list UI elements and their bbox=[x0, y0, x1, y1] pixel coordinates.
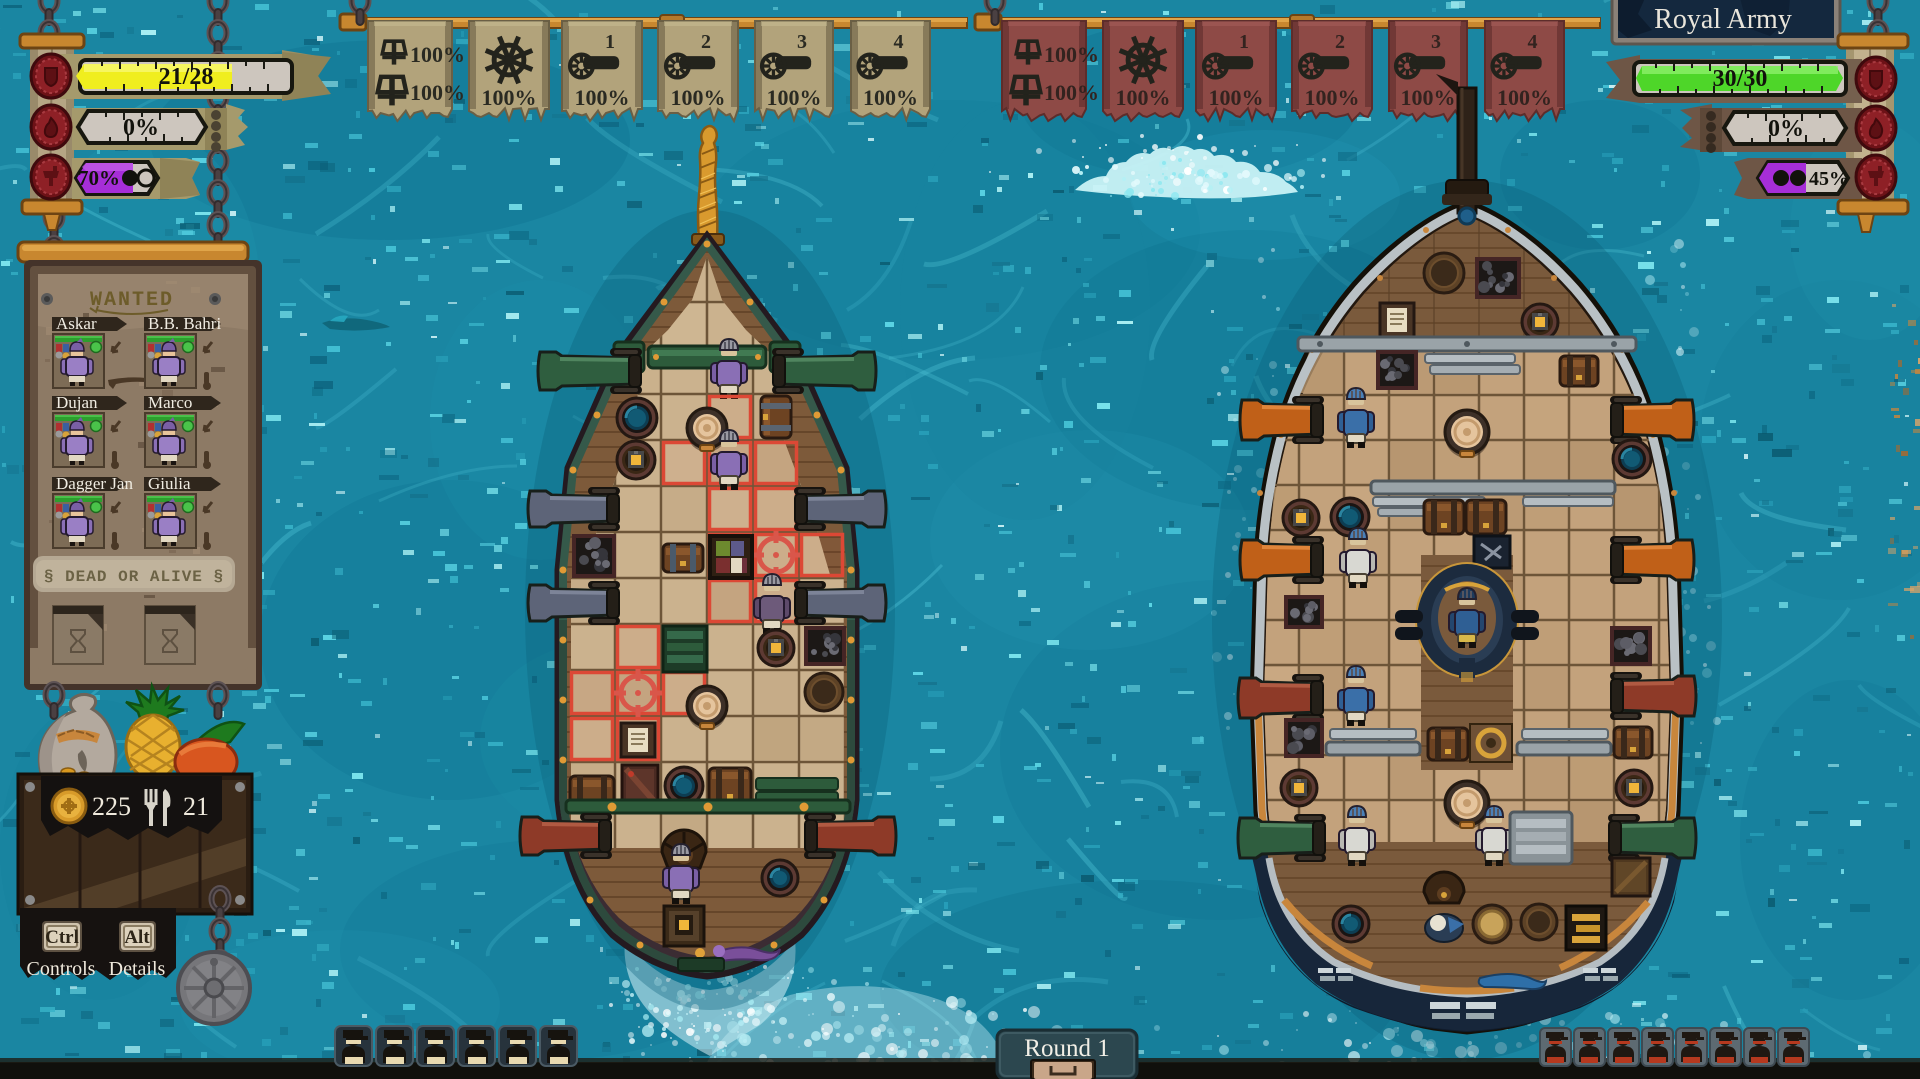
svg-text:21/28: 21/28 bbox=[159, 64, 214, 90]
svg-text:100%: 100% bbox=[410, 80, 465, 105]
svg-text:Giulia: Giulia bbox=[148, 474, 191, 493]
svg-text:45%: 45% bbox=[1809, 168, 1849, 190]
svg-text:100%: 100% bbox=[767, 85, 822, 110]
svg-text:100%: 100% bbox=[863, 85, 918, 110]
svg-text:Controls: Controls bbox=[27, 958, 96, 980]
svg-text:0%: 0% bbox=[123, 115, 159, 141]
svg-text:3: 3 bbox=[1431, 31, 1441, 53]
svg-text:1: 1 bbox=[605, 31, 615, 53]
svg-text:1: 1 bbox=[1239, 31, 1249, 53]
svg-text:3: 3 bbox=[797, 31, 807, 53]
svg-text:100%: 100% bbox=[1044, 80, 1099, 105]
svg-text:Details: Details bbox=[109, 958, 166, 980]
svg-text:100%: 100% bbox=[1305, 85, 1360, 110]
svg-text:2: 2 bbox=[1335, 31, 1345, 53]
svg-text:Dagger Jan: Dagger Jan bbox=[56, 474, 133, 493]
svg-text:Marco: Marco bbox=[148, 393, 192, 412]
svg-text:4: 4 bbox=[1528, 31, 1538, 53]
svg-text:100%: 100% bbox=[1497, 85, 1552, 110]
svg-text:Ctrl: Ctrl bbox=[45, 927, 79, 948]
svg-text:2: 2 bbox=[701, 31, 711, 53]
svg-text:100%: 100% bbox=[1209, 85, 1264, 110]
svg-text:21: 21 bbox=[183, 792, 209, 821]
svg-text:100%: 100% bbox=[482, 85, 537, 110]
svg-text:4: 4 bbox=[894, 31, 904, 53]
svg-text:100%: 100% bbox=[671, 85, 726, 110]
svg-text:0%: 0% bbox=[1768, 116, 1804, 142]
svg-text:100%: 100% bbox=[410, 42, 465, 67]
svg-text:Royal Army: Royal Army bbox=[1654, 4, 1792, 35]
svg-text:Alt: Alt bbox=[124, 927, 150, 948]
svg-text:100%: 100% bbox=[1401, 85, 1456, 110]
svg-text:Dujan: Dujan bbox=[56, 393, 98, 412]
svg-text:30/30: 30/30 bbox=[1713, 66, 1768, 92]
svg-text:Askar: Askar bbox=[56, 314, 97, 333]
svg-text:100%: 100% bbox=[1044, 42, 1099, 67]
svg-text:100%: 100% bbox=[1116, 85, 1171, 110]
svg-text:B.B. Bahri: B.B. Bahri bbox=[148, 314, 221, 333]
svg-text:WANTED: WANTED bbox=[90, 289, 174, 312]
svg-text:§ DEAD OR ALIVE §: § DEAD OR ALIVE § bbox=[44, 568, 224, 586]
svg-text:225: 225 bbox=[92, 792, 131, 821]
svg-text:70%: 70% bbox=[78, 166, 120, 190]
svg-text:Round 1: Round 1 bbox=[1024, 1035, 1109, 1062]
svg-text:100%: 100% bbox=[575, 85, 630, 110]
